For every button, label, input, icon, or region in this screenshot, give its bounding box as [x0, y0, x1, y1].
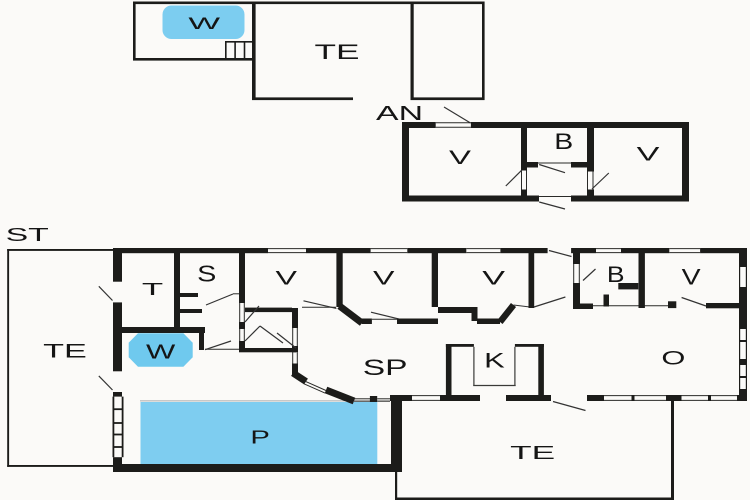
- svg-text:B: B: [554, 129, 573, 154]
- svg-text:S: S: [197, 261, 216, 287]
- svg-text:B: B: [607, 262, 625, 287]
- svg-text:TE: TE: [510, 442, 555, 463]
- svg-text:T: T: [142, 279, 164, 299]
- svg-text:V: V: [482, 268, 505, 289]
- svg-text:V: V: [373, 268, 395, 289]
- svg-text:O: O: [661, 349, 685, 370]
- svg-text:V: V: [637, 143, 660, 165]
- svg-text:V: V: [276, 268, 298, 289]
- svg-text:TE: TE: [43, 342, 87, 363]
- svg-text:AN: AN: [376, 102, 423, 125]
- svg-text:P: P: [250, 427, 270, 448]
- svg-text:W: W: [146, 342, 175, 364]
- svg-text:V: V: [449, 147, 471, 169]
- svg-text:ST: ST: [6, 224, 49, 245]
- svg-text:K: K: [484, 348, 506, 372]
- svg-text:SP: SP: [363, 355, 408, 380]
- svg-text:W: W: [188, 14, 220, 33]
- svg-text:V: V: [682, 264, 701, 289]
- svg-text:TE: TE: [315, 40, 360, 64]
